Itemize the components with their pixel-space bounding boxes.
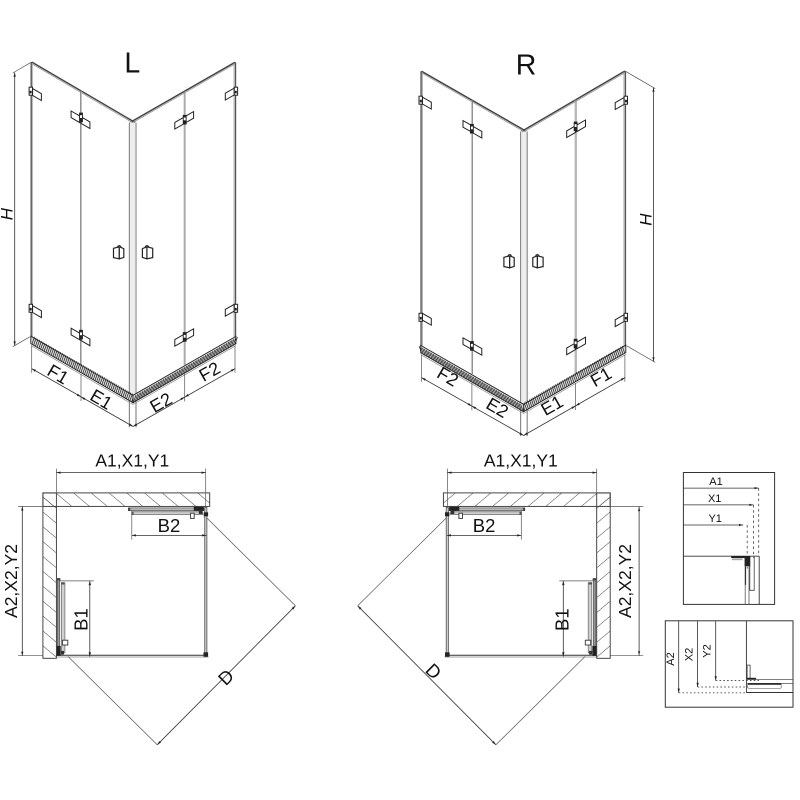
svg-text:X1: X1: [708, 493, 721, 505]
svg-text:B1: B1: [70, 608, 91, 631]
svg-text:A2,X2,Y2: A2,X2,Y2: [1, 544, 21, 618]
svg-text:B2: B2: [473, 515, 496, 536]
svg-text:H: H: [0, 207, 16, 220]
svg-text:R: R: [516, 50, 537, 82]
svg-text:L: L: [124, 48, 140, 80]
svg-text:A1: A1: [709, 476, 722, 488]
svg-text:A2: A2: [665, 652, 677, 665]
svg-text:Y1: Y1: [708, 513, 721, 525]
svg-text:B1: B1: [552, 608, 573, 631]
svg-text:Y2: Y2: [702, 644, 714, 657]
svg-text:X2: X2: [683, 648, 695, 661]
svg-text:H: H: [636, 213, 655, 226]
svg-text:A2,X2,Y2: A2,X2,Y2: [615, 544, 635, 618]
svg-text:B2: B2: [158, 515, 181, 536]
svg-text:A1,X1,Y1: A1,X1,Y1: [95, 451, 169, 471]
svg-text:A1,X1,Y1: A1,X1,Y1: [484, 451, 558, 471]
